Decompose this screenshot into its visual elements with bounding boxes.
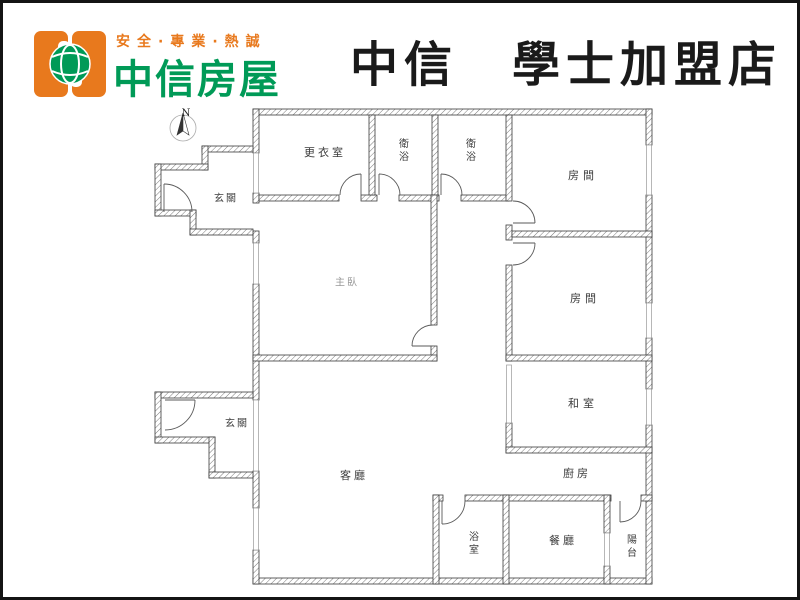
compass-icon: N bbox=[170, 108, 196, 141]
room-label-living: 客廳 bbox=[336, 467, 368, 483]
room-label-dining: 餐廳 bbox=[545, 532, 577, 548]
room-label-balcony: 陽台 bbox=[623, 534, 638, 560]
room-label-foyer-top: 玄關 bbox=[212, 190, 238, 205]
floor-plan: N bbox=[3, 3, 800, 600]
room-label-bedroom-2: 房間 bbox=[566, 290, 600, 306]
room-label-bath-top-2: 衛浴 bbox=[462, 138, 477, 164]
room-label-dressing: 更衣室 bbox=[300, 144, 346, 160]
room-label-tatami: 和室 bbox=[564, 395, 598, 411]
room-label-bathroom: 浴室 bbox=[465, 531, 480, 557]
room-label-bedroom-1: 房間 bbox=[564, 167, 598, 183]
room-label-master-bedroom: 主臥 bbox=[333, 274, 359, 289]
room-label-bath-top-1: 衛浴 bbox=[395, 138, 410, 164]
compass-n-label: N bbox=[182, 108, 191, 119]
room-label-foyer-bottom: 玄關 bbox=[223, 415, 249, 430]
flyer-canvas: 安全·專業·熱誠 中信房屋 中信 學士加盟店 bbox=[0, 0, 800, 600]
room-label-kitchen: 廚房 bbox=[559, 465, 591, 481]
